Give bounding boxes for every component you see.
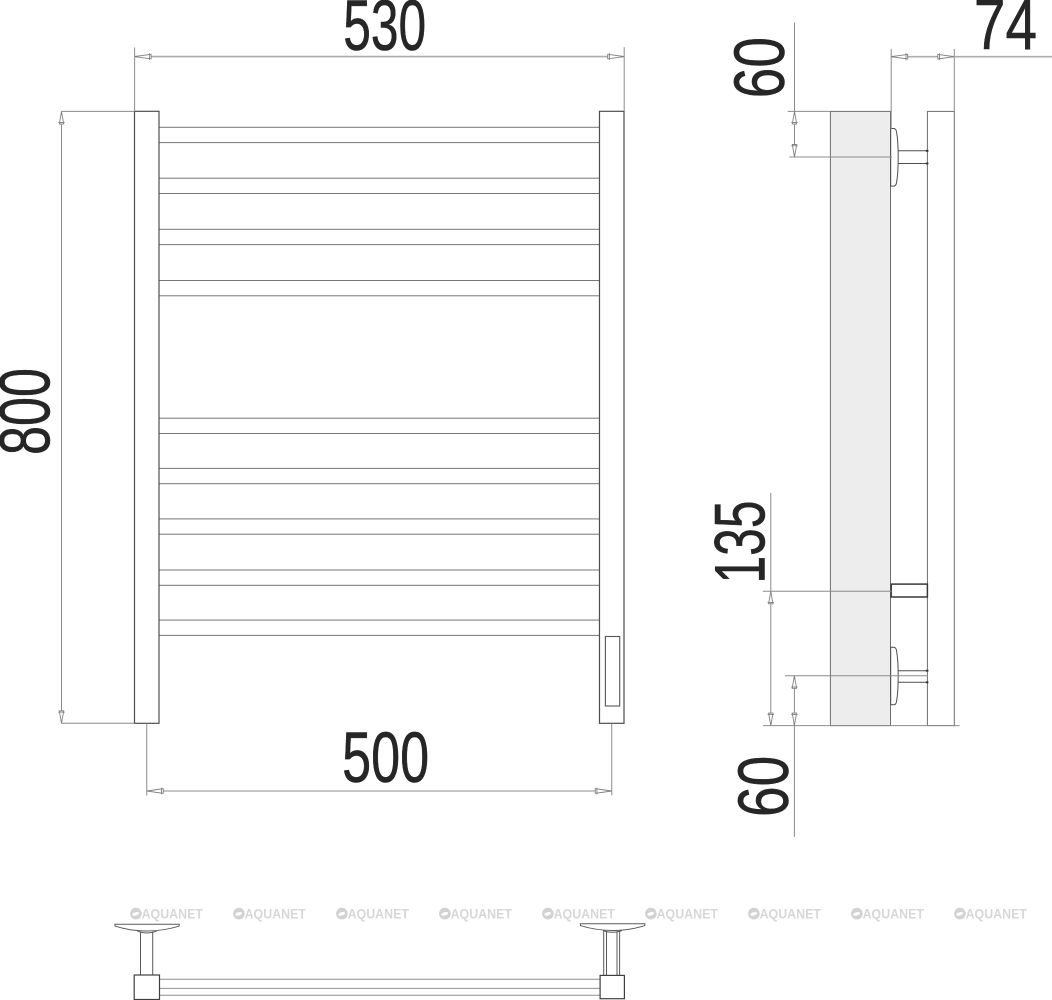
svg-text:AQUANET: AQUANET: [657, 906, 718, 922]
svg-text:60: 60: [721, 37, 799, 98]
svg-text:AQUANET: AQUANET: [966, 906, 1027, 922]
svg-text:AQUANET: AQUANET: [863, 906, 924, 922]
svg-text:AQUANET: AQUANET: [142, 906, 203, 922]
svg-text:800: 800: [0, 368, 66, 455]
svg-text:AQUANET: AQUANET: [554, 906, 615, 922]
svg-text:530: 530: [343, 0, 426, 65]
svg-text:74: 74: [974, 0, 1037, 64]
svg-text:AQUANET: AQUANET: [245, 906, 306, 922]
svg-text:500: 500: [342, 719, 429, 798]
svg-text:AQUANET: AQUANET: [760, 906, 821, 922]
svg-text:135: 135: [701, 501, 780, 584]
svg-text:AQUANET: AQUANET: [451, 906, 512, 922]
svg-text:60: 60: [726, 756, 804, 817]
svg-text:AQUANET: AQUANET: [348, 906, 409, 922]
